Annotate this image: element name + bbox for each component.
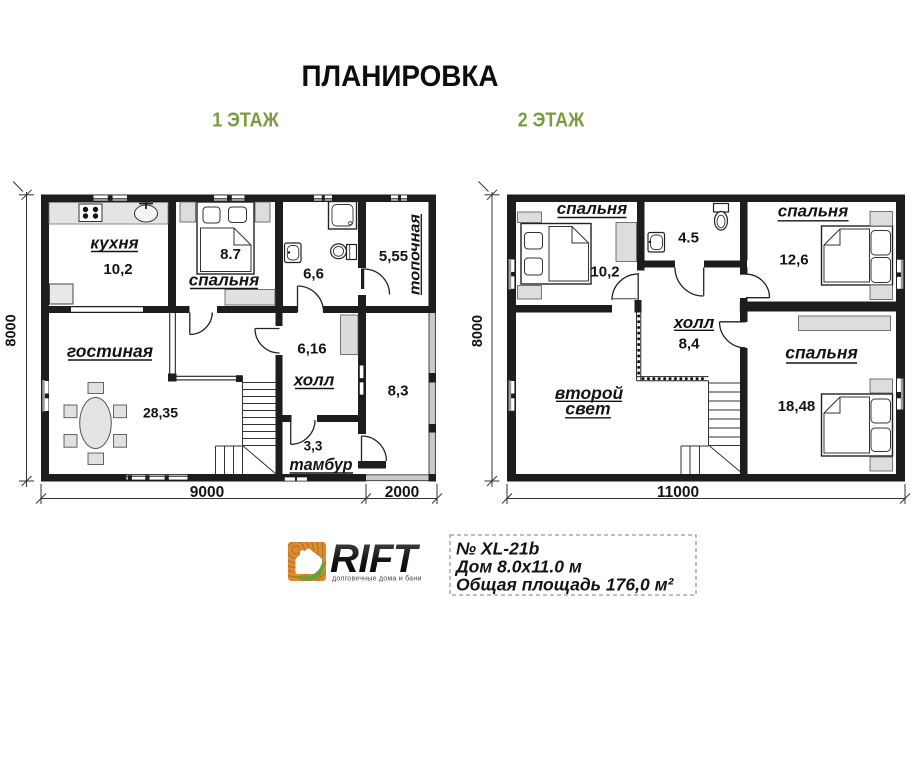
svg-text:4.5: 4.5 (678, 230, 699, 247)
svg-text:свет: свет (565, 399, 610, 419)
svg-text:8,3: 8,3 (388, 383, 409, 400)
svg-text:№ XL-21b: № XL-21b (456, 539, 540, 559)
svg-text:долговечные дома и бани: долговечные дома и бани (332, 575, 422, 583)
svg-text:28,35: 28,35 (143, 405, 178, 421)
svg-text:2000: 2000 (385, 484, 419, 501)
svg-text:18,48: 18,48 (778, 398, 816, 415)
svg-text:спальня: спальня (785, 343, 858, 363)
svg-text:тамбур: тамбур (290, 455, 353, 474)
svg-text:10,2: 10,2 (590, 264, 619, 281)
svg-text:8.7: 8.7 (220, 246, 241, 263)
svg-text:12,6: 12,6 (779, 252, 808, 269)
svg-text:9000: 9000 (190, 484, 224, 501)
svg-text:1 ЭТАЖ: 1 ЭТАЖ (212, 110, 279, 132)
svg-text:кухня: кухня (90, 234, 138, 253)
svg-text:11000: 11000 (657, 484, 699, 501)
svg-text:8000: 8000 (470, 315, 486, 347)
svg-text:Дом 8.0х11.0 м: Дом 8.0х11.0 м (454, 557, 582, 577)
svg-text:10,2: 10,2 (103, 261, 132, 278)
svg-text:3,3: 3,3 (304, 439, 323, 454)
svg-text:2 ЭТАЖ: 2 ЭТАЖ (518, 110, 585, 132)
svg-text:спальня: спальня (557, 199, 627, 218)
svg-text:холл: холл (293, 371, 335, 390)
svg-text:холл: холл (673, 313, 715, 332)
svg-text:гостиная: гостиная (67, 341, 153, 361)
svg-text:спальня: спальня (778, 202, 848, 221)
svg-text:5,55: 5,55 (379, 248, 408, 265)
svg-text:спальня: спальня (189, 271, 259, 290)
svg-text:ПЛАНИРОВКА: ПЛАНИРОВКА (302, 60, 499, 93)
svg-text:Общая площадь 176,0 м²: Общая площадь 176,0 м² (456, 575, 675, 595)
svg-text:8000: 8000 (4, 314, 20, 346)
svg-text:8,4: 8,4 (679, 336, 701, 353)
svg-text:6,16: 6,16 (297, 341, 326, 358)
svg-text:6,6: 6,6 (303, 266, 324, 283)
